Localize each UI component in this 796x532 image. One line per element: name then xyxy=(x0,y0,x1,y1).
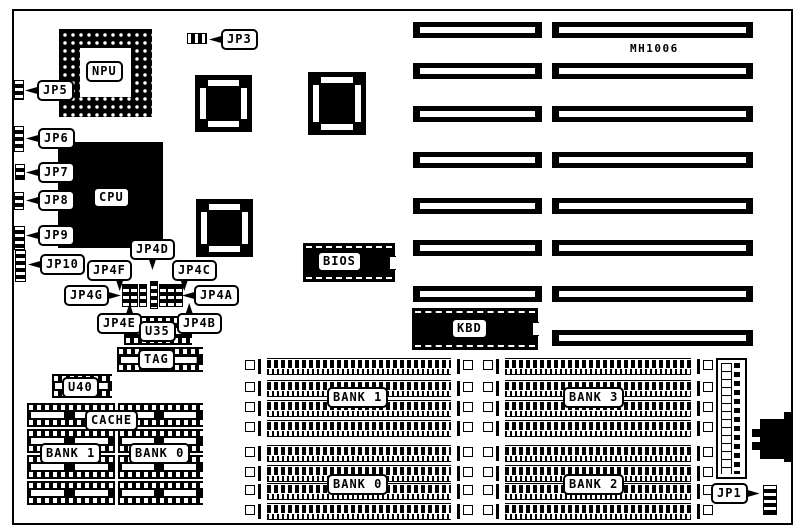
qfp-core xyxy=(319,83,355,124)
jp3-jumper xyxy=(187,33,207,44)
simm-latch xyxy=(453,445,473,462)
jp7-jumper xyxy=(15,164,25,180)
power-connector xyxy=(716,358,747,479)
jp4f-label: JP4F xyxy=(87,260,132,281)
qfp-core xyxy=(206,86,241,121)
simm-pins xyxy=(505,445,691,462)
simm-pins xyxy=(505,503,691,520)
qfp-corner xyxy=(311,75,321,85)
qfp-corner xyxy=(199,202,209,212)
jp4-block xyxy=(175,284,183,307)
simm-pins xyxy=(505,420,691,437)
simm-latch xyxy=(483,465,503,482)
isa-slot-segment xyxy=(413,286,542,302)
jp4-block xyxy=(150,281,158,309)
simm-socket xyxy=(483,358,713,375)
jp8-label: JP8 xyxy=(38,190,75,211)
simm-socket xyxy=(483,445,713,462)
simm-latch xyxy=(453,400,473,417)
isa-slot-segment xyxy=(552,22,753,38)
simm-socket xyxy=(245,503,473,520)
simm-pins xyxy=(267,358,451,375)
npu-label: NPU xyxy=(86,61,123,82)
simm-latch xyxy=(453,358,473,375)
jp4-block xyxy=(167,284,175,307)
simm-bank2-label: BANK 2 xyxy=(563,474,624,495)
isa-slot-segment xyxy=(413,106,542,122)
jp6-jumper xyxy=(14,126,24,152)
simm-socket xyxy=(483,503,713,520)
simm-latch xyxy=(245,483,265,500)
qfp-corner xyxy=(353,75,363,85)
u35-label: U35 xyxy=(139,321,176,342)
simm-pins xyxy=(267,503,451,520)
jp9-jumper xyxy=(14,226,25,250)
chip-notch xyxy=(532,322,539,336)
qfp-chip-3 xyxy=(308,72,366,135)
qfp-chip-1 xyxy=(195,75,252,132)
jp4-jumper-row xyxy=(121,281,183,308)
qfp-corner xyxy=(311,122,321,132)
simm-latch xyxy=(483,400,503,417)
isa-slot-segment xyxy=(552,152,753,168)
kbd-label: KBD xyxy=(451,318,488,339)
simm-latch xyxy=(245,420,265,437)
qfp-corner xyxy=(199,244,209,254)
jp3-label: JP3 xyxy=(221,29,258,50)
jp7-label: JP7 xyxy=(38,162,75,183)
simm-bank0-label: BANK 0 xyxy=(327,474,388,495)
simm-latch xyxy=(483,445,503,462)
power-connector-pins xyxy=(734,363,740,474)
isa-slot-segment xyxy=(413,152,542,168)
cache-chip xyxy=(27,481,115,505)
model-number: MH1006 xyxy=(630,42,679,55)
simm-pins xyxy=(505,358,691,375)
jp10-label: JP10 xyxy=(40,254,85,275)
jp5-label: JP5 xyxy=(37,80,74,101)
simm-latch xyxy=(245,358,265,375)
jp4-block xyxy=(130,284,138,307)
jp10-jumper xyxy=(15,250,26,282)
simm-latch xyxy=(245,380,265,397)
simm-latch xyxy=(693,465,713,482)
keyboard-connector-flange xyxy=(784,412,792,462)
simm-latch xyxy=(693,380,713,397)
chip-notch xyxy=(389,256,396,270)
simm-latch xyxy=(483,380,503,397)
cache-label: CACHE xyxy=(85,410,138,431)
simm-latch xyxy=(453,420,473,437)
simm-latch xyxy=(483,420,503,437)
jp4g-label: JP4G xyxy=(64,285,109,306)
keyboard-connector-pin xyxy=(752,442,760,450)
qfp-core xyxy=(207,210,242,246)
simm-latch xyxy=(453,503,473,520)
simm-latch xyxy=(693,400,713,417)
jp4-block xyxy=(159,284,167,307)
simm-socket xyxy=(483,420,713,437)
qfp-corner xyxy=(239,78,249,88)
cpu-label: CPU xyxy=(93,187,130,208)
u40-label: U40 xyxy=(62,377,99,398)
jp4c-label: JP4C xyxy=(172,260,217,281)
simm-latch xyxy=(453,380,473,397)
simm-latch xyxy=(245,445,265,462)
motherboard-diagram: MH1006 NPU CPU JP5 JP6 JP7 JP8 JP9 JP10 … xyxy=(0,0,796,532)
keyboard-connector xyxy=(760,419,786,459)
jp1-label: JP1 xyxy=(711,483,748,504)
jp8-jumper xyxy=(14,192,24,210)
simm-latch xyxy=(693,445,713,462)
isa-slot-segment xyxy=(552,330,753,346)
simm-bank3-label: BANK 3 xyxy=(563,387,624,408)
simm-latch xyxy=(483,358,503,375)
jp6-label: JP6 xyxy=(38,128,75,149)
jp4a-label: JP4A xyxy=(194,285,239,306)
isa-slot-segment xyxy=(413,198,542,214)
jp4d-label: JP4D xyxy=(130,239,175,260)
jp9-label: JP9 xyxy=(38,225,75,246)
simm-pins xyxy=(267,420,451,437)
simm-latch xyxy=(483,483,503,500)
isa-slot-segment xyxy=(552,198,753,214)
simm-latch xyxy=(245,465,265,482)
jp4-block xyxy=(122,284,130,307)
isa-slot-segment xyxy=(552,63,753,79)
qfp-corner xyxy=(198,119,208,129)
jp1-jumper xyxy=(763,485,777,515)
keyboard-connector-pin xyxy=(752,429,760,437)
simm-socket xyxy=(245,358,473,375)
qfp-corner xyxy=(198,78,208,88)
cache-chip xyxy=(118,481,203,505)
cache-bank1-label: BANK 1 xyxy=(40,443,101,464)
simm-socket xyxy=(245,420,473,437)
cache-bank0-label: BANK 0 xyxy=(129,443,190,464)
jp4b-label: JP4B xyxy=(177,313,222,334)
simm-latch xyxy=(693,483,713,500)
simm-latch xyxy=(453,465,473,482)
qfp-corner xyxy=(353,122,363,132)
isa-slot-segment xyxy=(413,240,542,256)
jp4-block xyxy=(139,284,147,307)
simm-latch xyxy=(453,483,473,500)
qfp-chip-2 xyxy=(196,199,253,257)
jp5-jumper xyxy=(14,80,24,100)
simm-latch xyxy=(245,503,265,520)
qfp-corner xyxy=(240,244,250,254)
simm-latch xyxy=(245,400,265,417)
simm-latch xyxy=(693,358,713,375)
simm-socket xyxy=(245,445,473,462)
bios-label: BIOS xyxy=(317,251,362,272)
simm-pins xyxy=(267,445,451,462)
simm-latch xyxy=(693,420,713,437)
isa-slot-segment xyxy=(552,240,753,256)
simm-bank1-label: BANK 1 xyxy=(327,387,388,408)
power-connector-pins xyxy=(721,363,732,474)
isa-slot-segment xyxy=(413,22,542,38)
isa-slot-segment xyxy=(552,106,753,122)
simm-latch xyxy=(483,503,503,520)
qfp-corner xyxy=(239,119,249,129)
qfp-corner xyxy=(240,202,250,212)
simm-latch xyxy=(693,503,713,520)
jp4e-label: JP4E xyxy=(97,313,142,334)
isa-slot-segment xyxy=(552,286,753,302)
tag-label: TAG xyxy=(138,349,175,370)
isa-slot-segment xyxy=(413,63,542,79)
